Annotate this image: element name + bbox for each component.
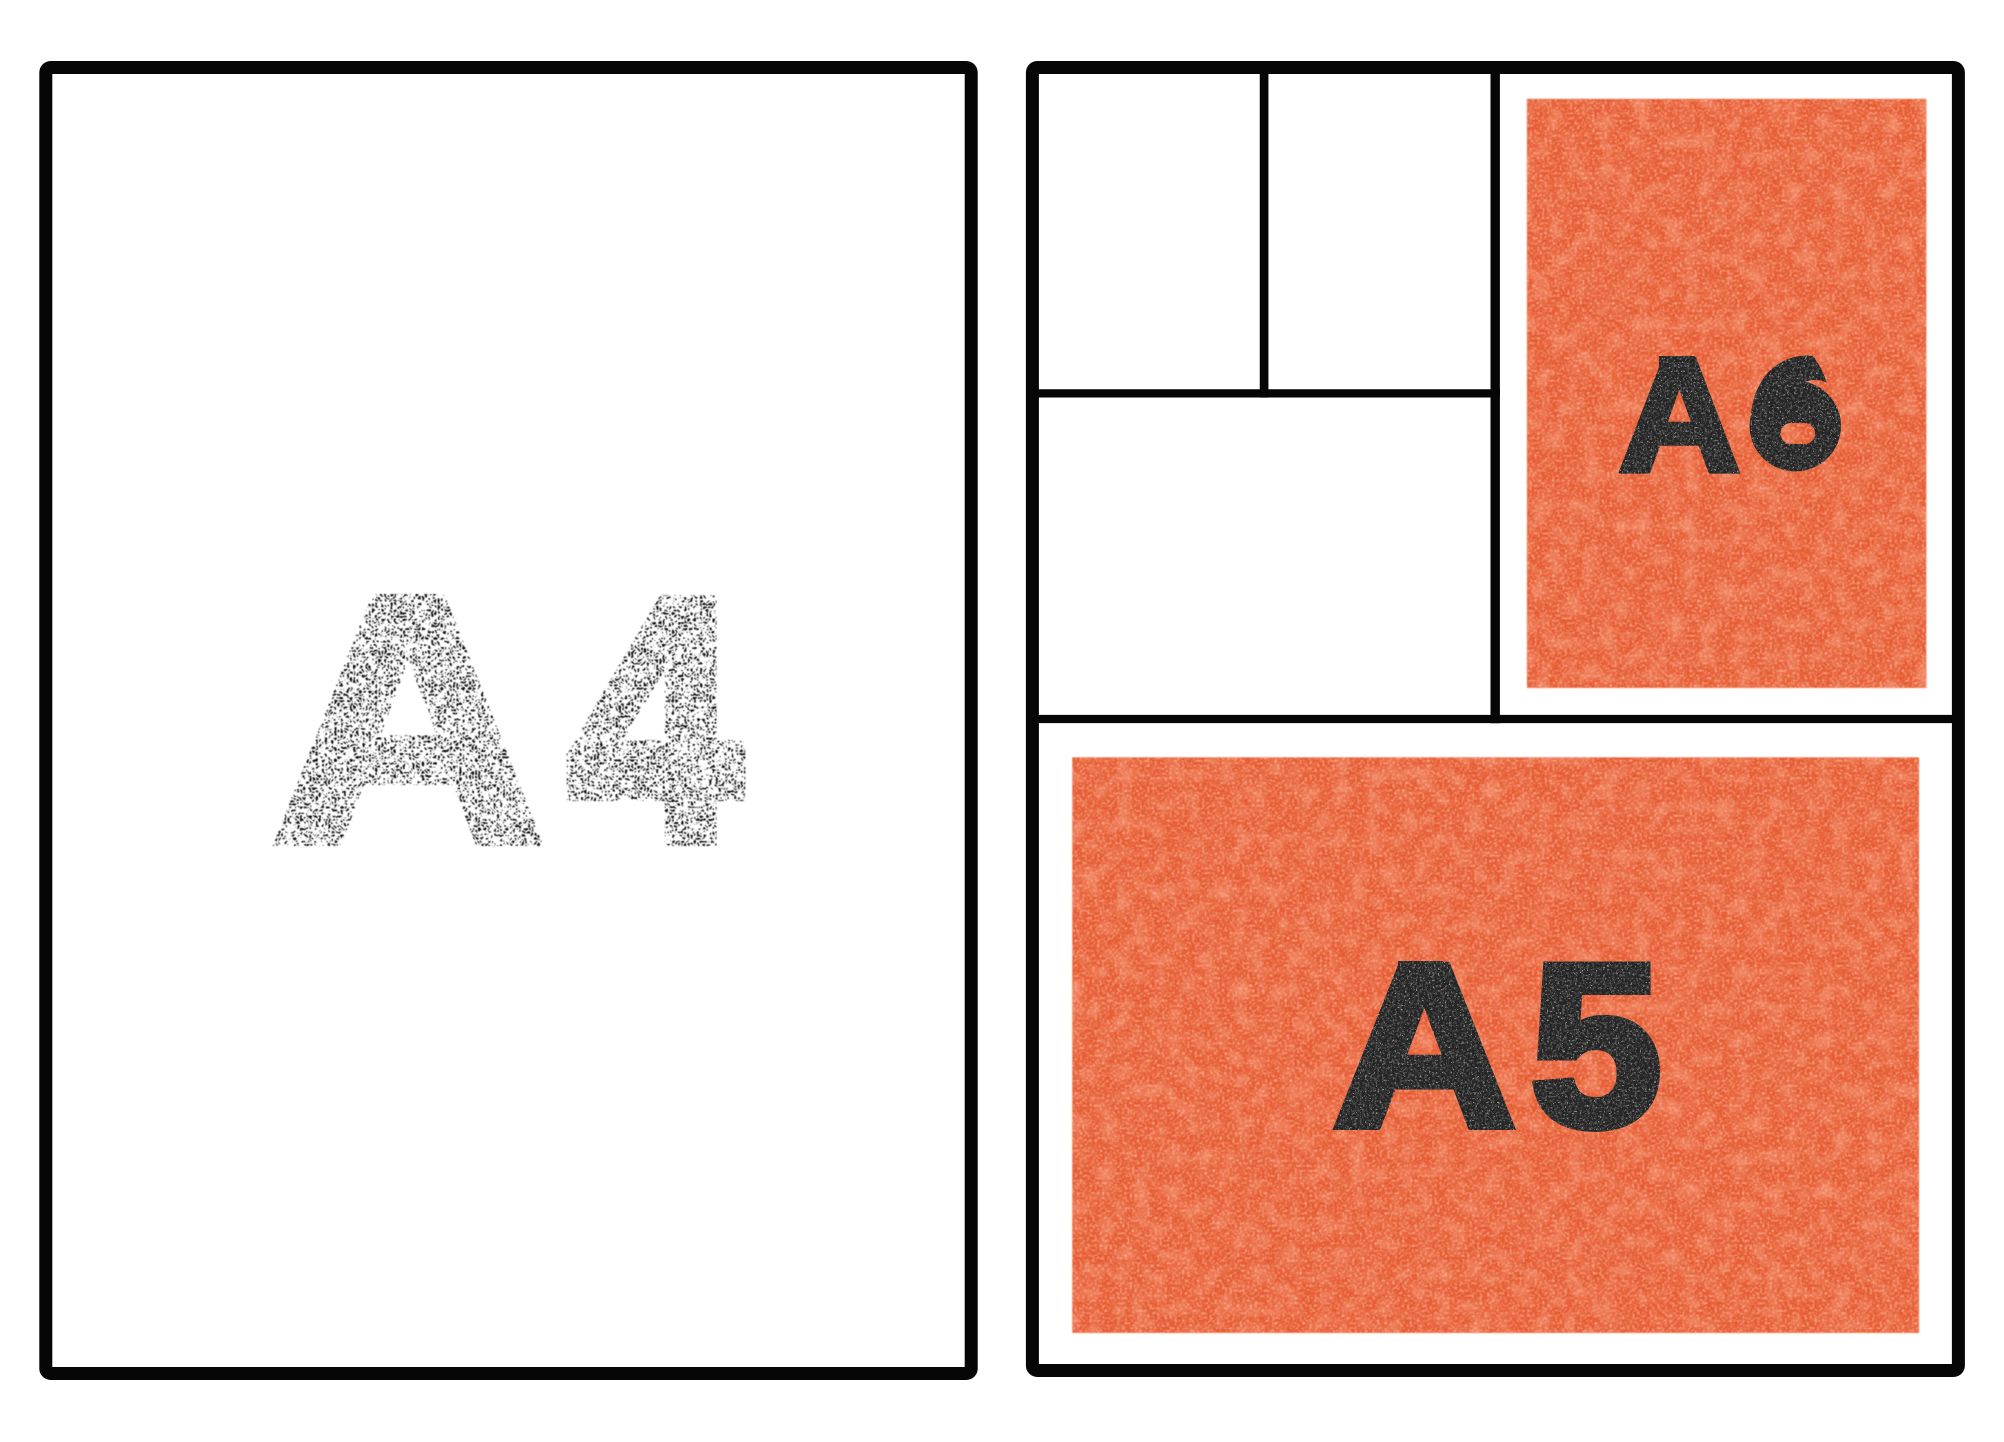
svg-text:A: A [273, 526, 545, 914]
svg-text:A: A [1619, 326, 1740, 504]
svg-text:4: 4 [567, 527, 743, 914]
svg-text:A: A [1334, 917, 1515, 1174]
svg-text:5: 5 [1531, 917, 1662, 1174]
